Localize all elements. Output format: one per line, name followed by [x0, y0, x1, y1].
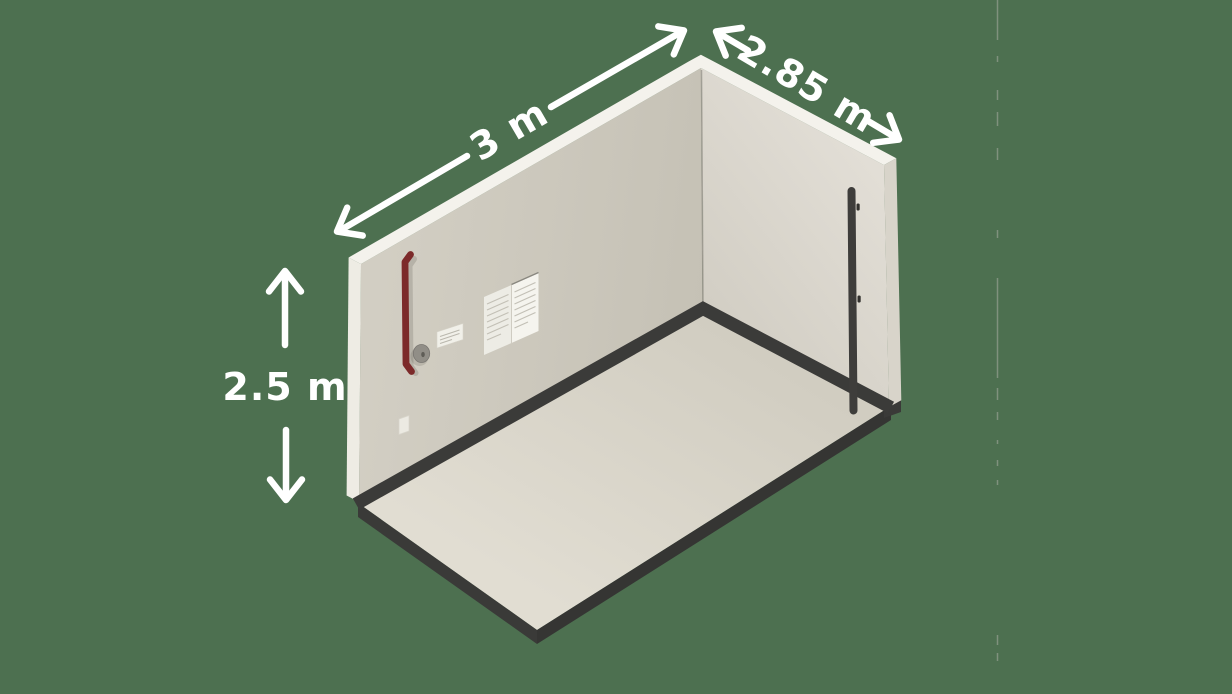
pole-mount-top — [857, 204, 860, 211]
wall-pole — [852, 191, 854, 411]
light-switch — [399, 416, 409, 435]
left-wall-end-face — [347, 258, 361, 503]
pole-mount-bottom — [858, 296, 861, 303]
storage-room-illustration: 3 m 2.85 m 2.5 m — [0, 0, 1232, 694]
room-3d-render — [0, 0, 1232, 694]
wall-disc-keyhole — [421, 352, 425, 357]
height-dimension-label: 2.5 m — [222, 365, 347, 409]
